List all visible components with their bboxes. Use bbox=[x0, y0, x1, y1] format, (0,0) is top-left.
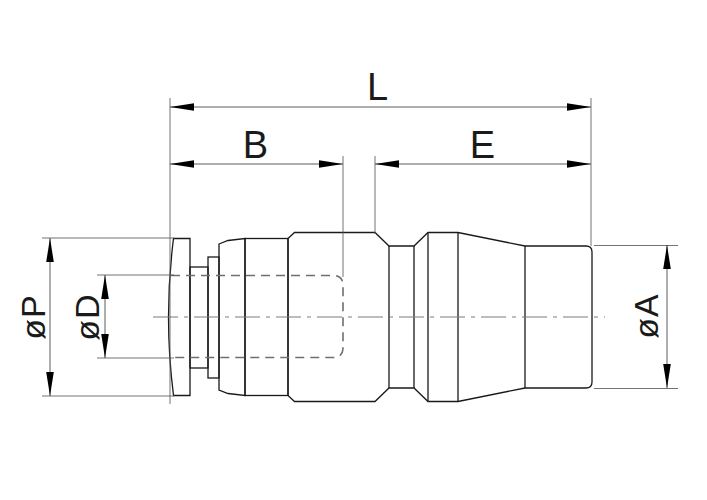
dim-label-D: øD bbox=[68, 293, 106, 340]
dim-label-A: øA bbox=[627, 293, 665, 338]
drawing-page: L B E øP øD bbox=[0, 0, 707, 500]
dimension-collar-diameter: øP bbox=[14, 238, 54, 396]
arrowhead-P-top bbox=[46, 238, 54, 262]
dim-label-P: øP bbox=[14, 294, 52, 339]
dim-label-L: L bbox=[367, 66, 389, 108]
dimension-bore-diameter: øD bbox=[68, 275, 109, 358]
fitting-technical-drawing: L B E øP øD bbox=[0, 0, 707, 500]
arrowhead-A-top bbox=[663, 245, 671, 269]
arrowhead-B-right bbox=[319, 160, 343, 168]
dimension-right-section: E bbox=[375, 124, 591, 168]
arrowhead-L-left bbox=[170, 103, 194, 111]
dimension-left-section: B bbox=[170, 124, 343, 168]
dimension-overall-length: L bbox=[170, 66, 591, 111]
arrowhead-P-bottom bbox=[46, 372, 54, 396]
arrowhead-B-left bbox=[170, 160, 194, 168]
arrowhead-E-right bbox=[567, 160, 591, 168]
arrowhead-A-bottom bbox=[663, 364, 671, 388]
dim-label-B: B bbox=[243, 124, 269, 166]
extension-lines bbox=[42, 98, 678, 404]
arrowhead-E-left bbox=[375, 160, 399, 168]
arrowhead-L-right bbox=[567, 103, 591, 111]
dim-label-E: E bbox=[470, 124, 496, 166]
dimension-end-diameter: øA bbox=[627, 245, 671, 388]
